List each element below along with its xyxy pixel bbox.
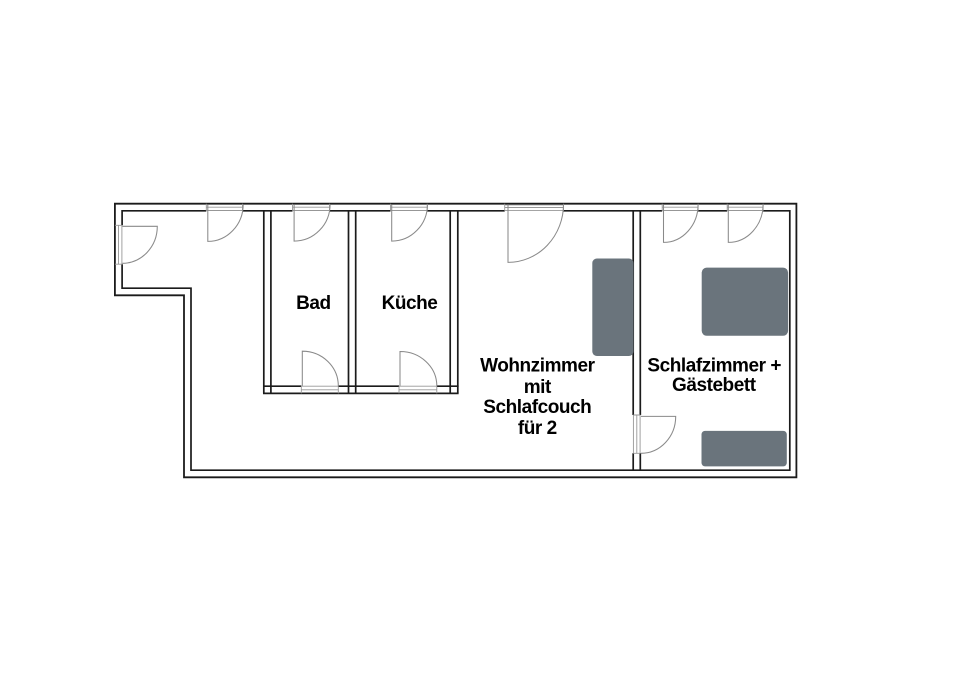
svg-text:Schlafcouch: Schlafcouch — [483, 397, 591, 418]
svg-text:Schlafzimmer +: Schlafzimmer + — [647, 355, 781, 376]
svg-text:Bad: Bad — [296, 293, 331, 314]
svg-text:Gästebett: Gästebett — [672, 375, 757, 396]
svg-text:mit: mit — [524, 377, 552, 398]
svg-text:Wohnzimmer: Wohnzimmer — [480, 355, 595, 376]
svg-text:Küche: Küche — [382, 293, 438, 314]
svg-text:für 2: für 2 — [518, 418, 557, 439]
